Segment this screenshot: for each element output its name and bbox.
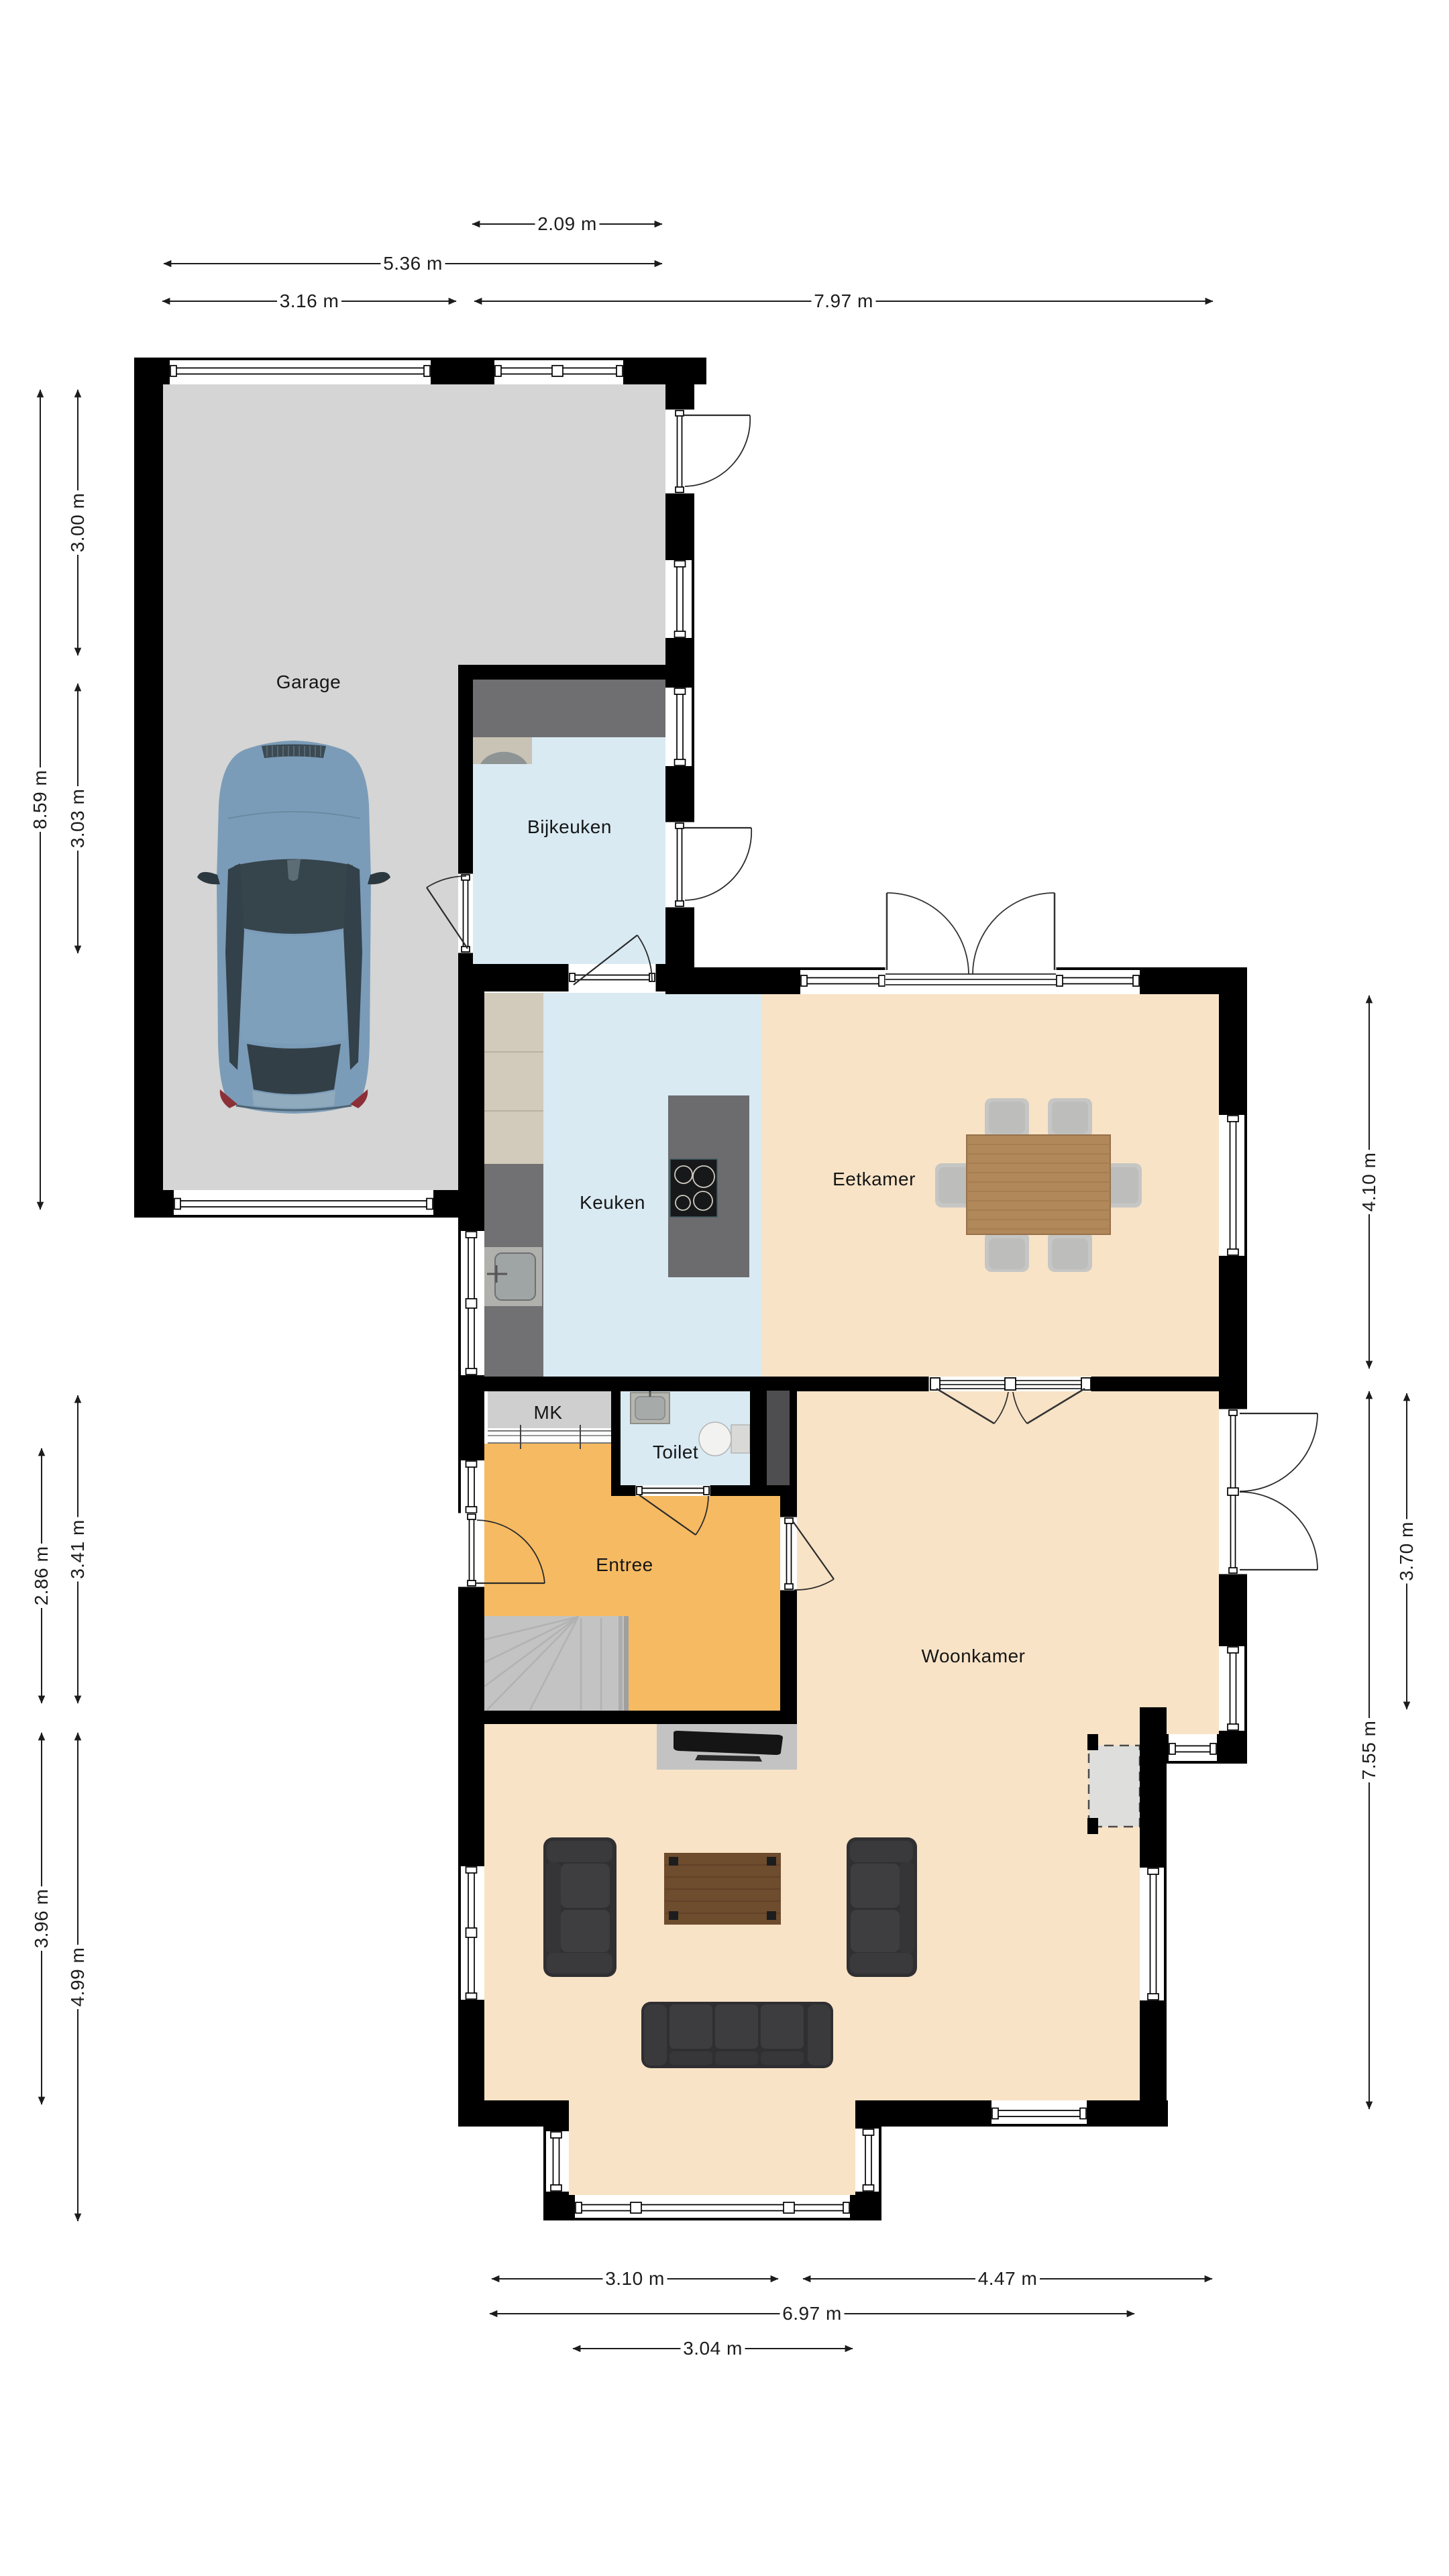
- svg-text:6.97 m: 6.97 m: [782, 2303, 842, 2324]
- svg-text:7.55 m: 7.55 m: [1358, 1721, 1379, 1780]
- svg-text:3.70 m: 3.70 m: [1396, 1521, 1417, 1581]
- svg-text:3.41 m: 3.41 m: [67, 1519, 88, 1579]
- svg-text:3.00 m: 3.00 m: [67, 493, 88, 553]
- svg-text:8.59 m: 8.59 m: [30, 770, 50, 830]
- svg-text:MK: MK: [534, 1402, 563, 1423]
- svg-text:4.99 m: 4.99 m: [67, 1947, 88, 2007]
- svg-text:3.96 m: 3.96 m: [31, 1889, 52, 1949]
- svg-text:Toilet: Toilet: [653, 1442, 698, 1462]
- svg-text:7.97 m: 7.97 m: [814, 290, 873, 311]
- svg-text:3.10 m: 3.10 m: [605, 2268, 665, 2289]
- svg-text:2.86 m: 2.86 m: [31, 1546, 52, 1606]
- svg-text:2.09 m: 2.09 m: [537, 213, 597, 234]
- svg-text:Woonkamer: Woonkamer: [922, 1646, 1026, 1666]
- svg-text:3.03 m: 3.03 m: [67, 789, 88, 849]
- svg-text:3.16 m: 3.16 m: [280, 290, 339, 311]
- svg-text:3.04 m: 3.04 m: [683, 2338, 743, 2359]
- svg-text:5.36 m: 5.36 m: [383, 253, 443, 274]
- svg-text:4.10 m: 4.10 m: [1358, 1152, 1379, 1212]
- svg-text:Bijkeuken: Bijkeuken: [527, 816, 612, 837]
- svg-text:4.47 m: 4.47 m: [978, 2268, 1038, 2289]
- svg-text:Garage: Garage: [276, 672, 341, 692]
- svg-text:Eetkamer: Eetkamer: [833, 1169, 916, 1189]
- svg-text:Entree: Entree: [596, 1554, 653, 1575]
- svg-text:Keuken: Keuken: [580, 1192, 645, 1213]
